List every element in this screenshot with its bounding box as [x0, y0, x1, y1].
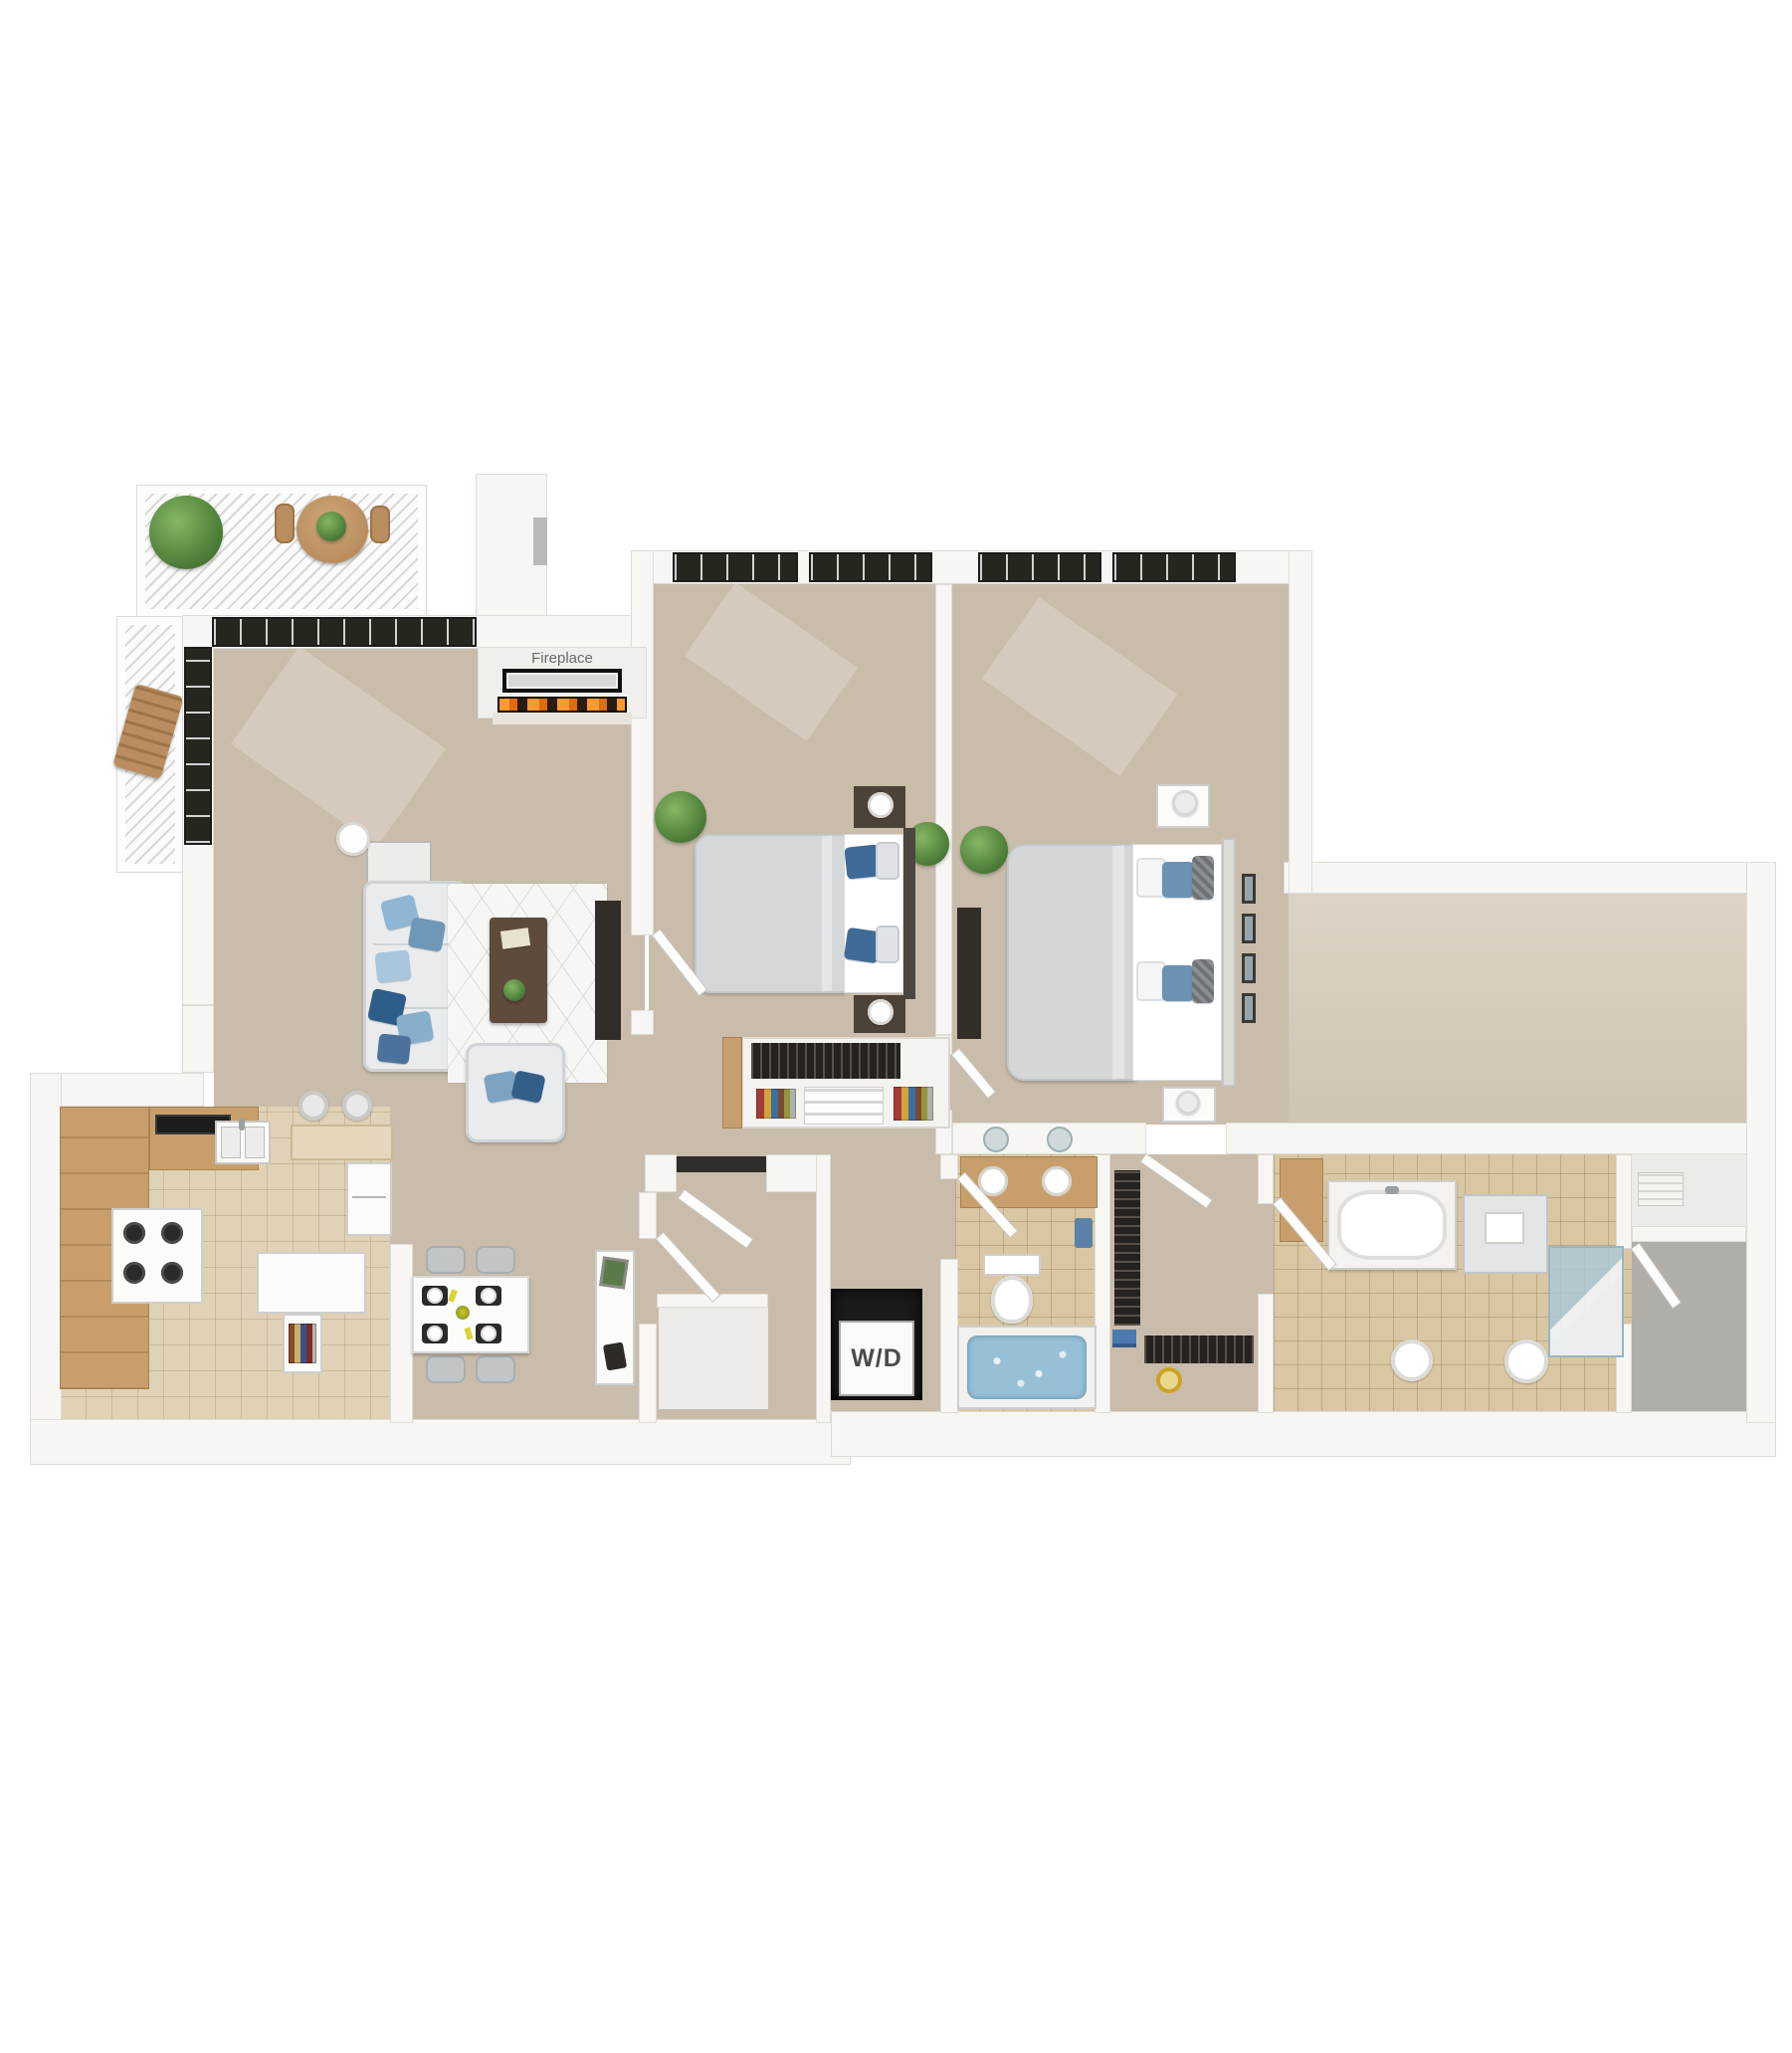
closet-clothes-rack-icon: [751, 1043, 900, 1079]
bed-2-pattern-pillow: [1192, 959, 1214, 1003]
console-decor-item: [603, 1341, 627, 1370]
dining-chair: [476, 1246, 515, 1274]
hall-closet-wood-panel: [722, 1037, 742, 1129]
bedroom-2-table-lamp-icon: [1176, 1091, 1200, 1115]
kitchen-left-wall: [30, 1073, 62, 1453]
wall-art-frame-icon: [1242, 914, 1256, 943]
balcony-plant-icon: [149, 496, 223, 569]
left-mid-wall: [182, 1005, 214, 1073]
plate-icon: [481, 1326, 497, 1341]
bathtub-basin-icon: [1337, 1190, 1447, 1260]
balcony-chair: [275, 504, 295, 543]
bed-1-duvet-fold: [822, 836, 832, 992]
table-centerpiece-icon: [456, 1306, 470, 1320]
wall-bed1-bed2: [935, 584, 952, 1035]
refrigerator: [346, 1162, 392, 1236]
bedroom-1-plant-icon: [655, 791, 706, 843]
bed-1-accent-pillow: [876, 842, 899, 880]
corridor-left-wall: [816, 1154, 831, 1423]
bath1-mirror-icon: [983, 1127, 1009, 1152]
bedroom2-right-wall: [1289, 550, 1312, 894]
wall-living-bed1-upper: [631, 550, 654, 935]
wall-bath2-storage-a: [1616, 1154, 1632, 1249]
plate-icon: [427, 1288, 443, 1304]
corner-shower: [1548, 1246, 1624, 1357]
bed-2-headboard: [1222, 838, 1236, 1087]
kitchen-island: [257, 1252, 366, 1314]
bedroom-2-tv-console: [957, 908, 981, 1039]
bed-2-duvet-fold: [1112, 845, 1124, 1079]
sofa-pillow: [375, 949, 412, 982]
coffee-table-plant-icon: [503, 979, 525, 1001]
closet-clothes-rack-icon: [1144, 1335, 1254, 1363]
stove-burner-icon: [161, 1262, 183, 1284]
sofa-pillow: [377, 1033, 412, 1064]
kitchen-faucet-icon: [239, 1119, 245, 1130]
bed-2-blue-pillow: [1162, 862, 1194, 898]
stove-burner-icon: [161, 1222, 183, 1244]
bedroom-1-window: [811, 554, 930, 580]
pedestal-sink-icon: [1391, 1339, 1433, 1381]
bath1-mirror-icon: [1047, 1127, 1073, 1152]
bed-2-blue-pillow: [1162, 965, 1194, 1001]
bedroom-1-table-lamp-icon: [868, 792, 894, 818]
wall-art-frame-icon: [1242, 953, 1256, 983]
dining-chair: [476, 1355, 515, 1383]
storage-bench: [1638, 1172, 1684, 1206]
tv-console: [595, 901, 621, 1040]
wing-top-wall-b: [1226, 1123, 1751, 1154]
bed-1-accent-pillow: [876, 925, 899, 963]
dining-chair: [426, 1246, 466, 1274]
closet-clothes-rack-icon: [1114, 1170, 1140, 1326]
fireplace-icon: [498, 697, 627, 713]
face-top-wall: [1284, 862, 1756, 894]
wall-dining-vestibule-b: [639, 1324, 657, 1423]
wall-art-frame-icon: [1242, 874, 1256, 904]
bedroom-1-table-lamp-icon: [868, 999, 894, 1025]
wall-living-bed1-lower: [631, 1010, 654, 1035]
wall-dining-vestibule-a: [639, 1192, 657, 1239]
balcony-chair: [370, 506, 390, 543]
plate-icon: [481, 1288, 497, 1304]
stove-burner-icon: [123, 1222, 145, 1244]
gold-mirror-icon: [1156, 1367, 1182, 1393]
floor-lamp-icon: [336, 822, 370, 856]
bath2-vanity-sink: [1485, 1212, 1524, 1244]
bedroom-1-window: [675, 554, 796, 580]
coffee-table-books: [500, 927, 530, 949]
breakfast-bar-counter: [291, 1125, 393, 1160]
bedroom-2-window: [980, 554, 1099, 580]
kitchen-sink-basin: [245, 1127, 265, 1158]
toilet-tank: [983, 1254, 1041, 1276]
floor-plan-image: Fireplace: [0, 0, 1792, 2053]
toilet-bowl-icon: [991, 1276, 1033, 1324]
balcony-table-plant-icon: [316, 512, 346, 541]
kitchen-sink-basin: [221, 1127, 241, 1158]
bookshelf-books-icon: [756, 1089, 796, 1119]
right-wing-bottom-wall: [831, 1411, 1776, 1457]
coat-closet-floor: [659, 1308, 768, 1409]
washer-dryer-label: W/D: [839, 1321, 914, 1396]
wall-bath1-left-a: [940, 1154, 958, 1179]
refrigerator-handle: [352, 1196, 386, 1198]
towel-icon: [1075, 1218, 1093, 1248]
bed-1-headboard: [903, 828, 915, 999]
stove: [111, 1208, 203, 1304]
console-table: [366, 841, 432, 885]
wall-storage-split: [1632, 1226, 1746, 1242]
armchair-pillow: [510, 1070, 545, 1104]
bedroom-2-plant-icon: [960, 826, 1008, 874]
front-door-threshold: [677, 1156, 766, 1172]
living-room-window: [214, 619, 475, 645]
fireplace-label: Fireplace: [478, 650, 647, 667]
bar-stool: [342, 1091, 372, 1121]
wall-closet-bath2-b: [1258, 1294, 1274, 1413]
sofa-pillow: [408, 917, 447, 951]
bathtub-faucet-icon: [1385, 1186, 1399, 1194]
bookshelf-books-icon: [894, 1087, 933, 1121]
bottles-icon: [289, 1324, 316, 1363]
stove-burner-icon: [123, 1262, 145, 1284]
wall-bath1-left-b: [940, 1259, 958, 1413]
vestibule-top-wall-a: [645, 1154, 677, 1192]
bath1-sink-icon: [1042, 1166, 1072, 1196]
kitchen-dining-wall: [390, 1244, 413, 1423]
bedroom-2-table-lamp-icon: [1172, 790, 1198, 816]
fireplace-hearth: [493, 713, 632, 724]
right-outer-wall: [1746, 862, 1776, 1423]
jacuzzi-water-icon: [967, 1335, 1087, 1399]
wall-art-frame-icon: [1242, 993, 1256, 1023]
chimney-shadow: [533, 517, 547, 565]
plate-icon: [427, 1326, 443, 1341]
left-wing-bottom-wall: [30, 1419, 851, 1465]
dining-chair: [426, 1355, 466, 1383]
wall-art-icon: [502, 669, 622, 693]
bath1-sink-icon: [978, 1166, 1008, 1196]
bed-2-pattern-pillow: [1192, 856, 1214, 900]
pedestal-sink-icon: [1504, 1339, 1548, 1383]
closet-linens-icon: [1112, 1330, 1136, 1347]
console-picture-frame: [599, 1256, 629, 1289]
shelf-steps: [804, 1087, 884, 1125]
living-room-side-window: [186, 649, 210, 843]
bedroom-2-window: [1114, 554, 1234, 580]
bar-stool: [299, 1091, 328, 1121]
wall-closet-bath2-a: [1258, 1154, 1274, 1204]
exterior-wall-face: [1289, 894, 1751, 1125]
